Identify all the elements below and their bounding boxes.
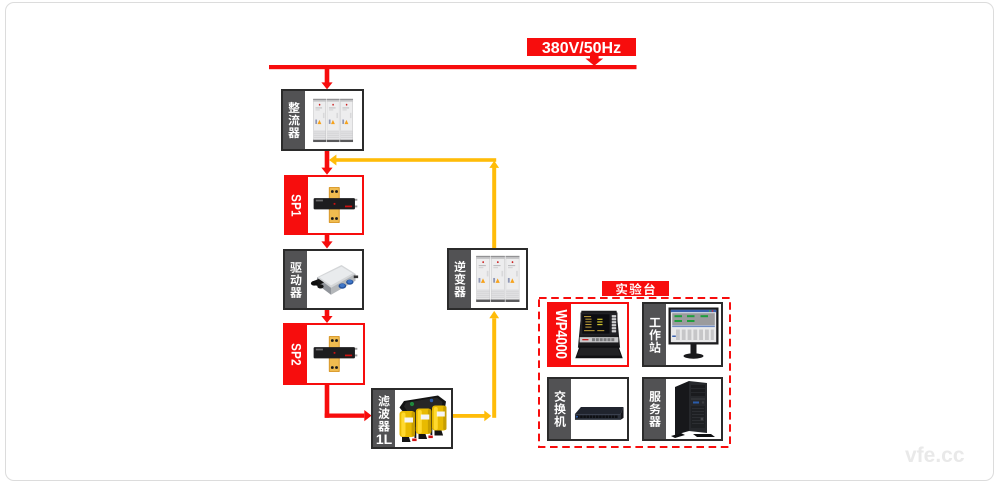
svg-text:1L: 1L: [375, 431, 392, 447]
